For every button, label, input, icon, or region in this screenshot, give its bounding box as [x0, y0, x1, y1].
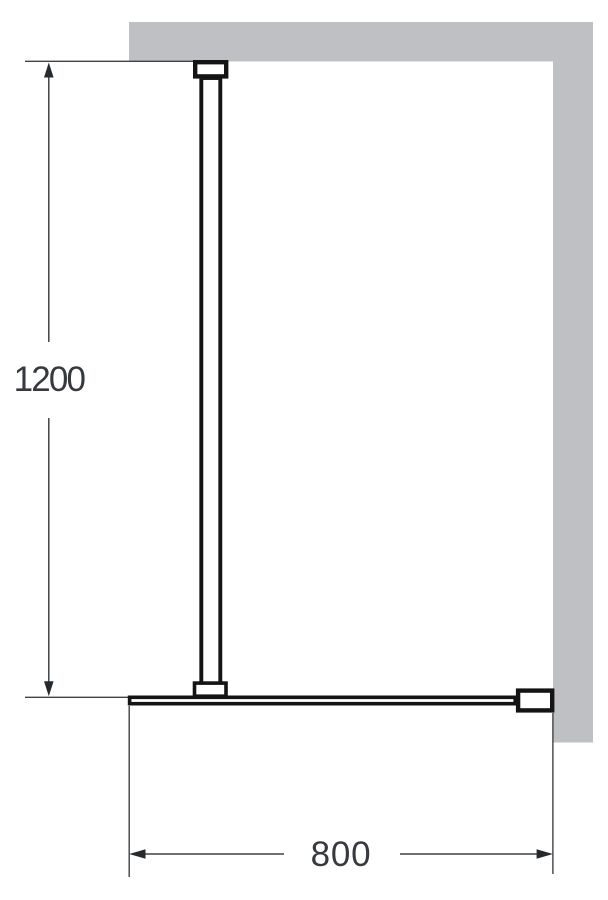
svg-text:1200: 1200 — [14, 360, 86, 399]
svg-text:800: 800 — [311, 835, 372, 874]
